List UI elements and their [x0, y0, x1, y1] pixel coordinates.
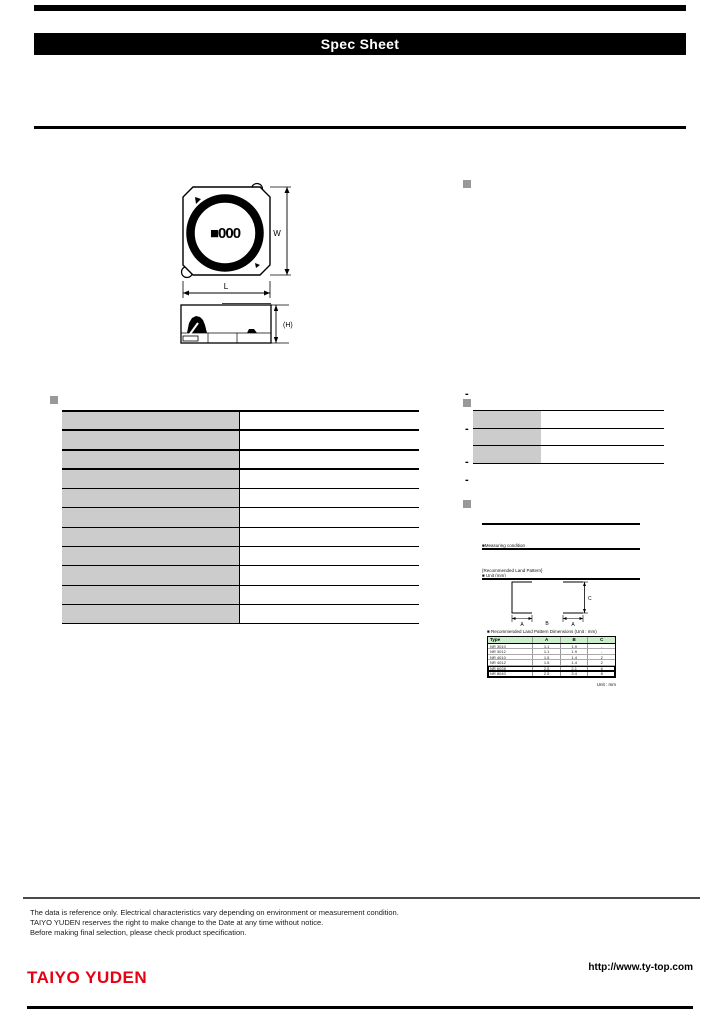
info-row-label: [473, 446, 541, 463]
lp-c-cell: 8: [587, 671, 615, 677]
info-table: [473, 410, 664, 464]
table-row: [473, 429, 664, 447]
spec-row-value: [240, 431, 419, 448]
table-row: [62, 586, 419, 605]
column-header: Type: [488, 637, 532, 643]
spec-row-label: [62, 489, 240, 507]
spec-row-label: [62, 605, 240, 623]
table-row: [62, 547, 419, 566]
lp-c-cell: -: [587, 644, 615, 649]
land-pattern-drawing: C A A B: [500, 580, 630, 628]
lp-b-cell: 1.4: [560, 660, 588, 665]
lp-a-cell: 1.1: [532, 649, 560, 654]
page-title: Spec Sheet: [321, 36, 399, 52]
lp-a-cell: 1.5: [532, 660, 560, 665]
component-dimension-drawing: ■000 W L (H): [162, 168, 302, 353]
lp-type-cell: NR 6028: [488, 666, 532, 671]
spec-row-label: [62, 451, 240, 468]
table-row: NR 8040 2.5 3.4 8: [488, 671, 615, 677]
disclaimer-line: The data is reference only. Electrical c…: [30, 908, 670, 918]
feature-bullet-dash: -: [465, 478, 471, 482]
feature-bullet-dash: -: [465, 427, 471, 431]
table-row: [62, 412, 419, 431]
spec-sheet-page: Spec Sheet ■000 W L: [0, 0, 720, 1012]
lp-b-cell: 1.9: [560, 644, 588, 649]
spec-row-label: [62, 431, 240, 448]
lp-c-cell: 2: [587, 655, 615, 660]
spec-row-value: [240, 412, 419, 429]
info-row-label: [473, 429, 541, 446]
spec-row-label: [62, 566, 240, 584]
features-bullet-list: ----: [465, 193, 477, 303]
column-header: C: [587, 637, 615, 643]
lp-a-cell: 1.1: [532, 644, 560, 649]
title-banner: Spec Sheet: [34, 33, 686, 55]
table-row: [473, 446, 664, 464]
note-line: ■ Unit (mm): [482, 573, 640, 577]
lp-c-cell: 6: [587, 666, 615, 671]
lp-a-cell: 1.5: [532, 655, 560, 660]
feature-bullet-dash: -: [465, 460, 471, 464]
disclaimer-line: TAIYO YUDEN reserves the right to make c…: [30, 918, 670, 928]
dim-label-height: (H): [283, 322, 293, 329]
note-rule: [482, 548, 640, 550]
measuring-condition-note: ■Measuring condition (for reference) Ind…: [482, 526, 640, 548]
spec-table-section-marker-icon: [50, 396, 58, 404]
taiyo-yuden-logo: TAIYO YUDEN: [27, 968, 147, 988]
spec-row-value: [240, 605, 419, 623]
info-row-value: [541, 429, 664, 446]
table-row: [62, 528, 419, 547]
lp-dim-label-a-left: A: [520, 622, 524, 628]
lp-type-cell: NR 3010: [488, 644, 532, 649]
table-row: [62, 489, 419, 508]
table-row: [62, 605, 419, 624]
spec-row-value: [240, 470, 419, 488]
info-row-value: [541, 446, 664, 463]
land-pattern-table-body: NR 3010 1.1 1.9 - NR 3012 1.1 1.9 - NR 4…: [488, 644, 615, 677]
info-row-value: [541, 411, 664, 428]
spec-row-value: [240, 566, 419, 584]
notes-section-marker-icon: [463, 500, 471, 508]
land-pattern-table-title: ■ Recommended Land Pattern Dimensions (U…: [487, 629, 617, 634]
lp-type-cell: NR 4010: [488, 655, 532, 660]
info-table-section-marker-icon: [463, 399, 471, 407]
spec-row-value: [240, 528, 419, 546]
website-url-link[interactable]: http://www.ty-top.com: [420, 962, 693, 973]
land-pattern-note: {Recommended Land Pattern}■ Unit (mm)The…: [482, 551, 640, 577]
land-pattern-table: Type A B C NR 3010 1.1 1.9 - NR 3012 1.1…: [487, 636, 616, 678]
lp-a-cell: 2.5: [532, 671, 560, 677]
dim-label-width: W: [273, 229, 281, 238]
table-row: [62, 451, 419, 470]
lp-c-cell: -: [587, 649, 615, 654]
table-row: [473, 411, 664, 429]
features-section-marker-icon: [463, 180, 471, 188]
column-header: A: [532, 637, 560, 643]
footer-divider: [23, 897, 700, 899]
lp-b-cell: 1.9: [560, 649, 588, 654]
table-row: [62, 470, 419, 489]
lp-type-cell: NR 8040: [488, 671, 532, 677]
disclaimer-text: The data is reference only. Electrical c…: [30, 908, 670, 938]
land-pad-left: [512, 582, 532, 613]
lp-dim-label-c: C: [588, 596, 592, 602]
info-row-label: [473, 411, 541, 428]
lp-c-cell: 2: [587, 660, 615, 665]
spec-row-label: [62, 412, 240, 429]
spec-row-value: [240, 508, 419, 526]
spec-row-value: [240, 489, 419, 507]
bottom-rule: [27, 1006, 693, 1009]
spec-row-label: [62, 586, 240, 604]
lp-b-cell: 1.4: [560, 655, 588, 660]
dim-label-length: L: [224, 282, 229, 291]
spec-row-value: [240, 451, 419, 468]
part-marking-text: ■000: [210, 225, 241, 242]
spec-row-label: [62, 470, 240, 488]
spec-row-label: [62, 547, 240, 565]
column-header: B: [560, 637, 588, 643]
spec-row-label: [62, 528, 240, 546]
spec-row-value: [240, 586, 419, 604]
lp-type-cell: NR 4012: [488, 660, 532, 665]
lp-dim-label-a-right: A: [571, 622, 575, 628]
spec-table: [62, 410, 419, 624]
lp-type-cell: NR 3012: [488, 649, 532, 654]
top-rule: [34, 5, 686, 11]
disclaimer-line: Before making final selection, please ch…: [30, 928, 670, 938]
table-row: [62, 431, 419, 450]
feature-bullet-dash: -: [465, 392, 471, 396]
note-rule: [482, 523, 640, 525]
lp-a-cell: 2.5: [532, 666, 560, 671]
spec-row-label: [62, 508, 240, 526]
header-divider: [34, 126, 686, 129]
land-pattern-table-footnote: Unit : mm: [487, 682, 616, 687]
lp-b-cell: 3.4: [560, 671, 588, 677]
lp-b-cell: 2.1: [560, 666, 588, 671]
table-row: [62, 566, 419, 585]
lp-dim-label-b: B: [545, 621, 549, 627]
terminal-pad: [183, 336, 198, 341]
spec-row-value: [240, 547, 419, 565]
table-row: [62, 508, 419, 527]
